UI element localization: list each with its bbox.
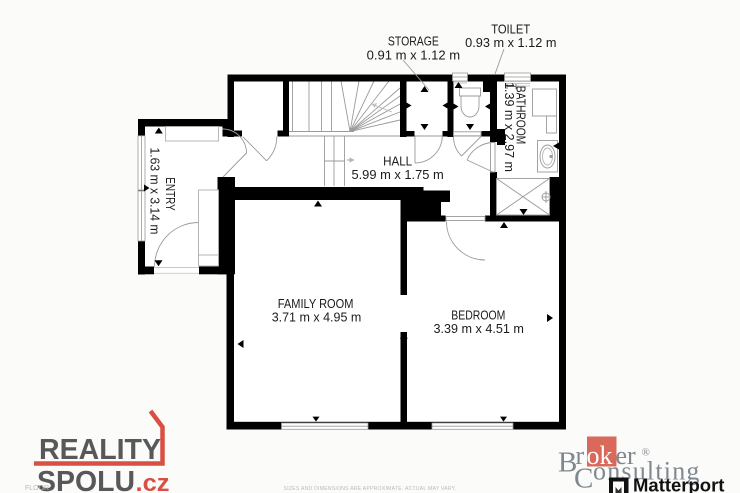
svg-text:3.39 m x 4.51 m: 3.39 m x 4.51 m (434, 321, 524, 336)
svg-text:3.71 m x 4.95 m: 3.71 m x 4.95 m (272, 310, 362, 325)
svg-text:SPOLU: SPOLU (37, 466, 135, 493)
svg-text:C: C (574, 463, 593, 493)
svg-text:ENTRY: ENTRY (163, 177, 178, 211)
svg-text:.cz: .cz (136, 470, 170, 493)
svg-text:Matterport: Matterport (633, 475, 724, 493)
svg-text:FLOOR: FLOOR (25, 485, 49, 492)
svg-text:5.99 m x 1.75 m: 5.99 m x 1.75 m (351, 167, 443, 182)
svg-text:0.91 m x 1.12 m: 0.91 m x 1.12 m (367, 47, 461, 62)
svg-text:1.39 m x 2.97 m: 1.39 m x 2.97 m (502, 82, 517, 172)
svg-text:0.93 m x 1.12 m: 0.93 m x 1.12 m (465, 35, 556, 50)
svg-text:REALITY: REALITY (39, 434, 161, 466)
svg-text:SIZES AND DIMENSIONS ARE APPRO: SIZES AND DIMENSIONS ARE APPROXIMATE. AC… (284, 486, 457, 492)
svg-text:STORAGE: STORAGE (388, 34, 439, 49)
svg-text:1.63 m x 3.14 m: 1.63 m x 3.14 m (148, 148, 163, 235)
